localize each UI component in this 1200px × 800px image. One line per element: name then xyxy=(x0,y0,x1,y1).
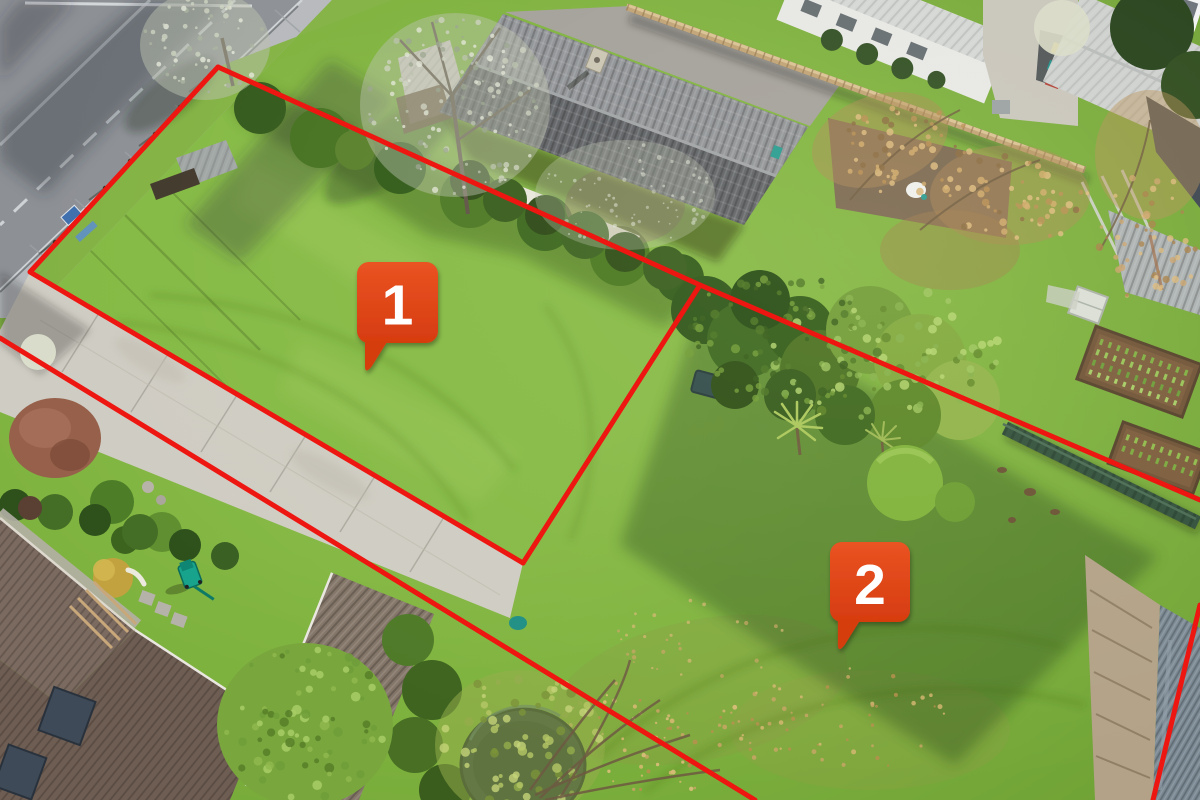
boundary-line-west-boundary-and-driveway-edge xyxy=(30,67,523,563)
aerial-photo-two-lots: 12 xyxy=(0,0,1200,800)
marker-label: 1 xyxy=(382,274,414,338)
boundary-line-east-boundary xyxy=(1153,605,1200,800)
lot-boundary-overlay: 12 xyxy=(0,0,1200,800)
marker-lot-2: 2 xyxy=(830,542,910,649)
boundary-line-lot-divider xyxy=(523,285,700,563)
marker-lot-1: 1 xyxy=(357,262,438,371)
boundary-line-south-boundary xyxy=(0,338,755,800)
marker-label: 2 xyxy=(854,553,886,617)
